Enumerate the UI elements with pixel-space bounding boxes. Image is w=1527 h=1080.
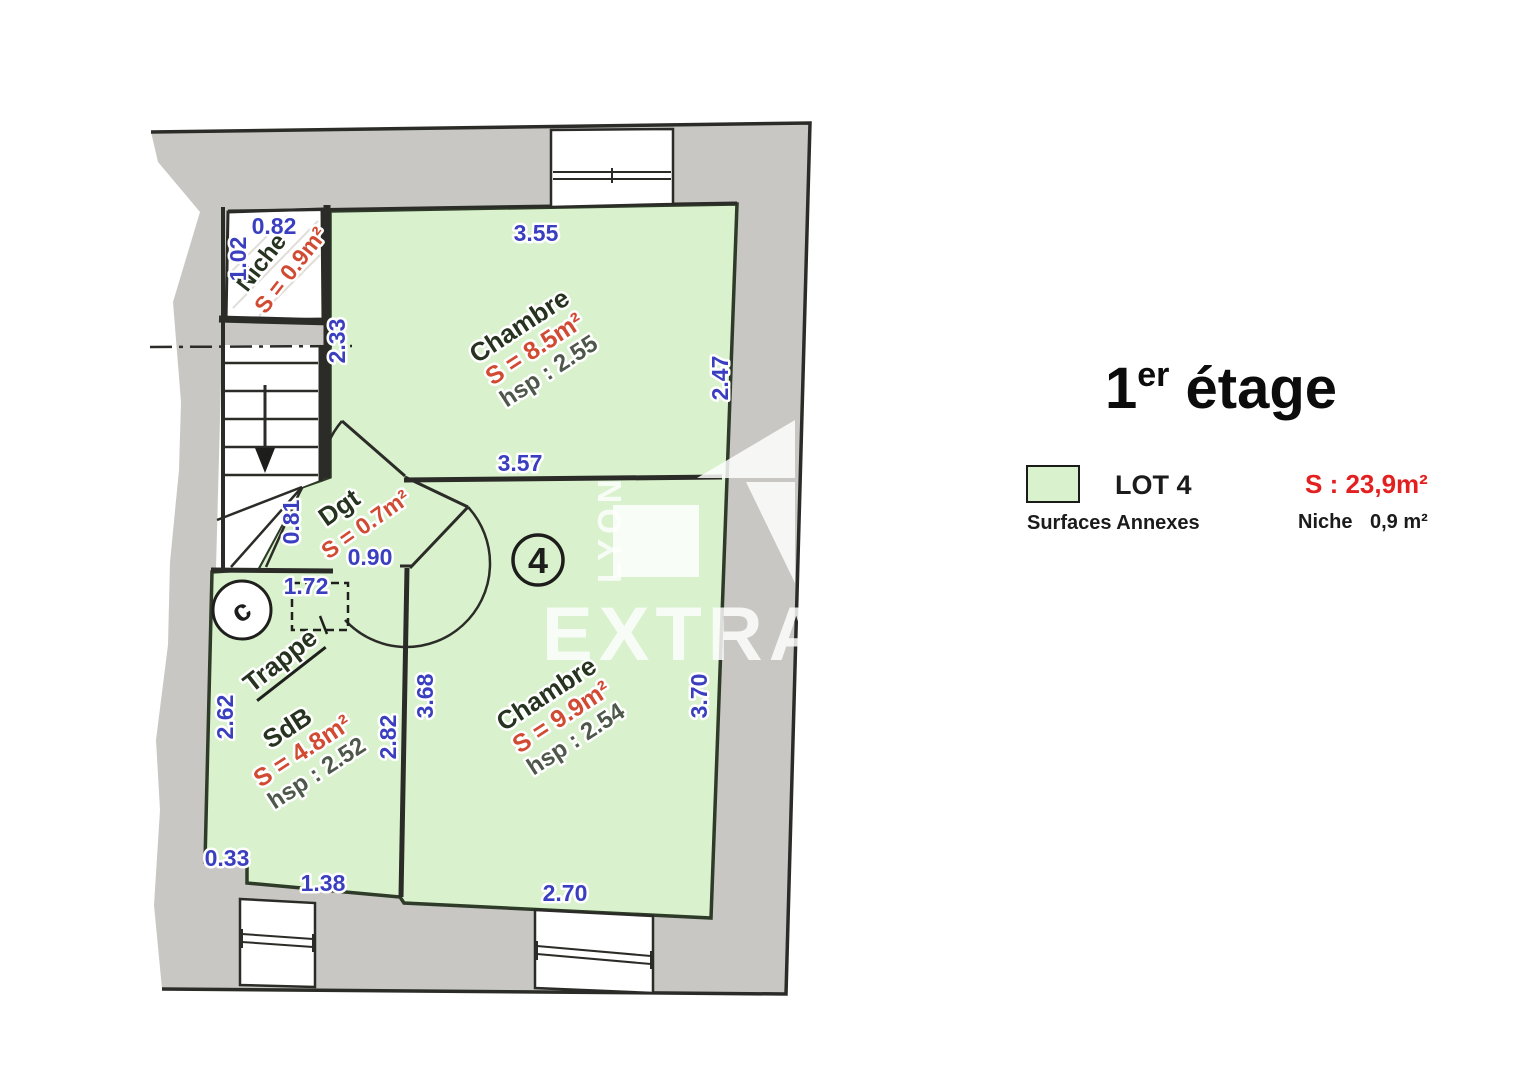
dim-trappe-width: 1.72 bbox=[284, 573, 329, 599]
dim-niche-width: 0.82 bbox=[252, 213, 297, 239]
dim-chambre1-width: 3.55 bbox=[514, 220, 559, 246]
legend-annex-title: Surfaces Annexes bbox=[1027, 512, 1200, 534]
dim-sdb-step: 0.33 bbox=[205, 845, 250, 871]
legend-lot-label: LOT 4 bbox=[1115, 470, 1192, 500]
lot-number: 4 bbox=[528, 540, 548, 581]
floor-title: 1er étage bbox=[1105, 356, 1337, 421]
dim-dgt-height: 0.81 bbox=[278, 499, 304, 544]
dim-chambre1-depth: 2.47 bbox=[707, 356, 733, 401]
dim-sdb-left: 2.62 bbox=[212, 695, 238, 740]
dim-dgt-width: 0.90 bbox=[348, 544, 393, 570]
legend-annex-name: Niche bbox=[1298, 511, 1352, 533]
window-bottom-right bbox=[535, 910, 653, 993]
dim-sdb-bottom: 1.38 bbox=[301, 870, 346, 896]
dim-chambre1-bottom: 3.57 bbox=[498, 450, 543, 476]
legend-swatch bbox=[1027, 466, 1079, 502]
legend-lot-area: S : 23,9m² bbox=[1305, 469, 1428, 499]
floorplan-page: c LYON EXTRAM bbox=[0, 0, 1527, 1080]
dim-chambre2-right: 3.70 bbox=[686, 674, 712, 719]
legend-annex-value: 0,9 m² bbox=[1370, 511, 1428, 533]
dim-stairs-height: 2.33 bbox=[324, 319, 350, 364]
watermark-city: LYON bbox=[591, 474, 628, 583]
dim-chambre2-bottom: 2.70 bbox=[543, 880, 588, 906]
side-panel: 1er étage LOT 4 S : 23,9m² Surfaces Anne… bbox=[1027, 356, 1428, 534]
window-top bbox=[551, 129, 673, 207]
floorplan-drawing: c LYON EXTRAM bbox=[0, 0, 1527, 1080]
dim-niche-depth: 1.02 bbox=[225, 237, 251, 282]
window-bottom-left bbox=[240, 899, 315, 987]
watermark-brand: EXTRAM bbox=[542, 592, 899, 677]
dim-chambre2-left: 3.68 bbox=[412, 673, 438, 718]
conduit-symbol: c bbox=[213, 581, 271, 639]
dim-sdb-right: 2.82 bbox=[375, 715, 401, 760]
